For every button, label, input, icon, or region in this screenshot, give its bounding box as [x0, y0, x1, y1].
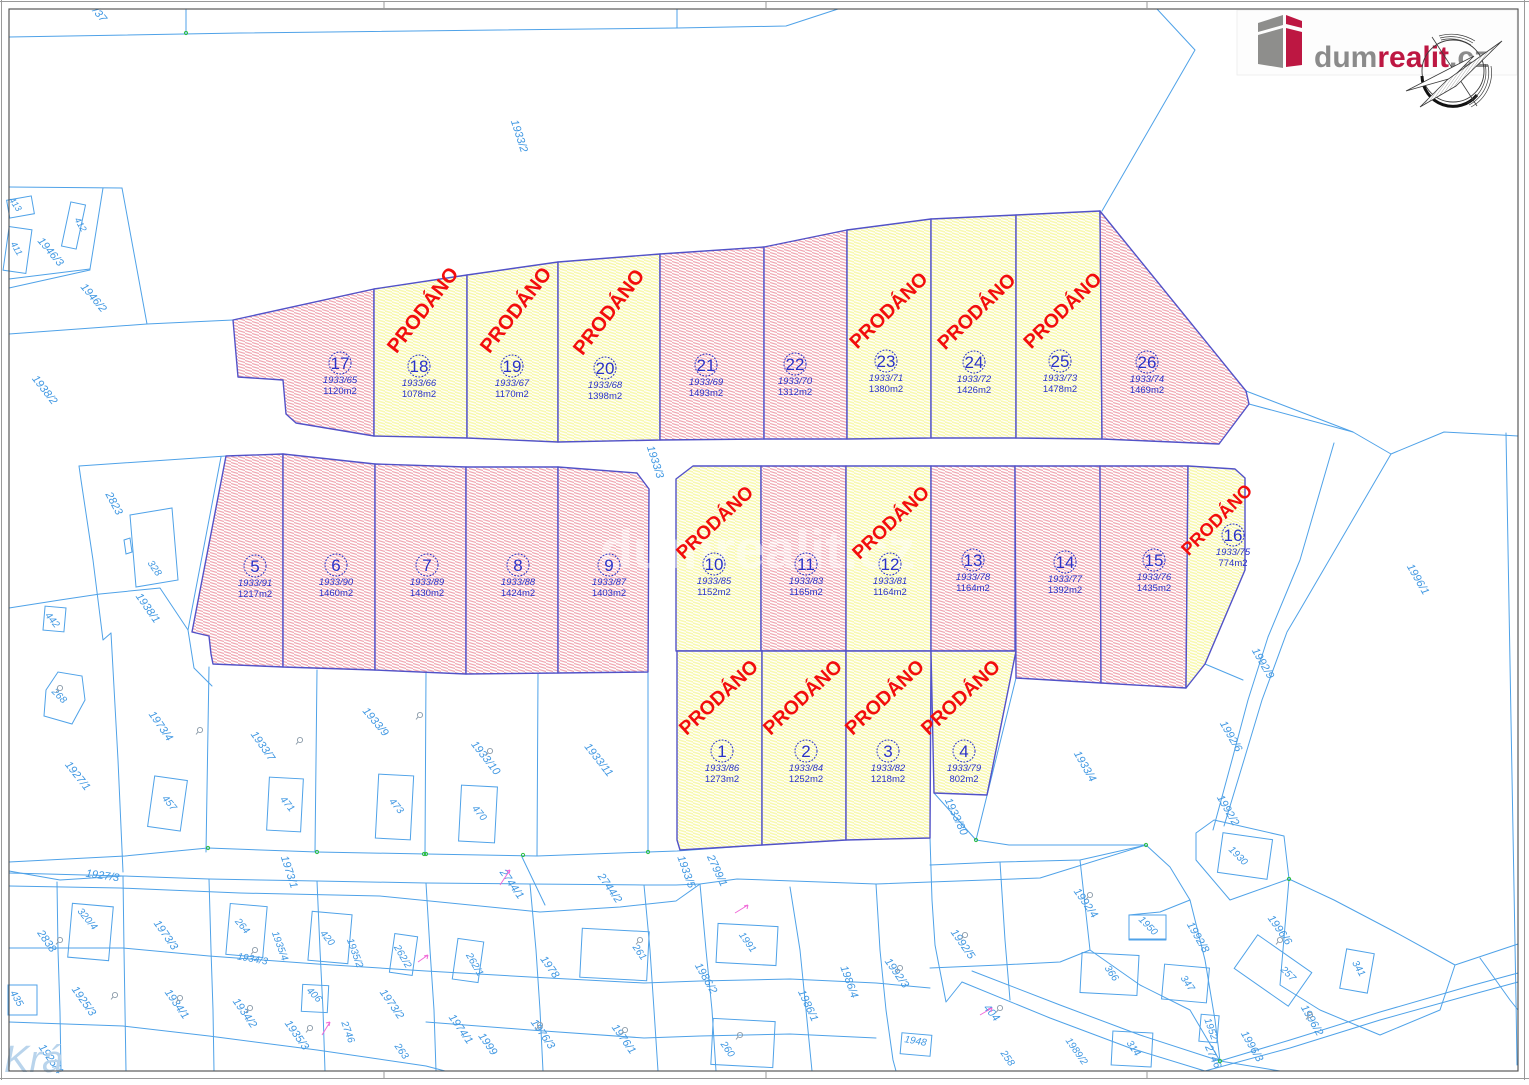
svg-text:1933/72: 1933/72	[957, 374, 992, 385]
svg-text:17: 17	[331, 354, 350, 373]
svg-text:1933/86: 1933/86	[705, 763, 740, 774]
svg-text:1217m2: 1217m2	[238, 589, 272, 600]
svg-text:1120m2: 1120m2	[323, 386, 357, 397]
svg-text:18: 18	[410, 357, 429, 376]
svg-text:1933/68: 1933/68	[588, 380, 623, 391]
svg-text:1493m2: 1493m2	[689, 388, 723, 399]
svg-text:13: 13	[964, 551, 983, 570]
svg-text:1152m2: 1152m2	[697, 587, 731, 598]
svg-text:1435m2: 1435m2	[1137, 583, 1171, 594]
svg-text:1403m2: 1403m2	[592, 588, 626, 599]
svg-text:774m2: 774m2	[1218, 558, 1247, 569]
svg-text:1933/77: 1933/77	[1048, 574, 1083, 585]
svg-text:3: 3	[883, 742, 892, 761]
svg-text:11: 11	[797, 555, 815, 574]
svg-text:1933/65: 1933/65	[323, 375, 358, 386]
svg-text:1078m2: 1078m2	[402, 389, 436, 400]
svg-text:1933/75: 1933/75	[1216, 547, 1251, 558]
svg-text:1273m2: 1273m2	[705, 774, 739, 785]
svg-text:9: 9	[604, 556, 613, 575]
svg-text:26: 26	[1138, 353, 1157, 372]
svg-text:1252m2: 1252m2	[789, 774, 823, 785]
svg-text:1380m2: 1380m2	[869, 384, 903, 395]
svg-text:1312m2: 1312m2	[778, 387, 812, 398]
svg-text:1933/83: 1933/83	[789, 576, 824, 587]
svg-text:1170m2: 1170m2	[495, 389, 529, 400]
svg-text:Krá: Krá	[4, 1039, 63, 1080]
svg-text:1933/84: 1933/84	[789, 763, 823, 774]
svg-text:1933/82: 1933/82	[871, 763, 906, 774]
svg-text:802m2: 802m2	[949, 774, 978, 785]
svg-text:1933/89: 1933/89	[410, 577, 445, 588]
svg-text:1933/81: 1933/81	[873, 576, 907, 587]
svg-text:10: 10	[705, 555, 724, 574]
svg-text:21: 21	[697, 356, 716, 375]
svg-text:2: 2	[801, 742, 810, 761]
svg-text:23: 23	[877, 352, 896, 371]
svg-text:1164m2: 1164m2	[956, 583, 990, 594]
svg-text:1933/87: 1933/87	[592, 577, 627, 588]
svg-text:1933/73: 1933/73	[1043, 373, 1078, 384]
svg-text:1478m2: 1478m2	[1043, 384, 1077, 395]
svg-text:1933/66: 1933/66	[402, 378, 437, 389]
svg-text:1933/88: 1933/88	[501, 577, 536, 588]
svg-text:1933/74: 1933/74	[1130, 374, 1164, 385]
svg-text:1424m2: 1424m2	[501, 588, 535, 599]
svg-text:4: 4	[959, 742, 968, 761]
svg-text:1165m2: 1165m2	[789, 587, 823, 598]
svg-text:1933/71: 1933/71	[869, 373, 903, 384]
svg-text:25: 25	[1051, 352, 1070, 371]
svg-text:1: 1	[717, 742, 726, 761]
svg-text:1933/67: 1933/67	[495, 378, 530, 389]
svg-text:1933/90: 1933/90	[319, 577, 354, 588]
svg-text:1164m2: 1164m2	[873, 587, 907, 598]
svg-text:1398m2: 1398m2	[588, 391, 622, 402]
svg-text:1933/78: 1933/78	[956, 572, 991, 583]
svg-text:1469m2: 1469m2	[1130, 385, 1164, 396]
svg-text:1460m2: 1460m2	[319, 588, 353, 599]
svg-text:24: 24	[965, 353, 984, 372]
svg-text:1392m2: 1392m2	[1048, 585, 1082, 596]
svg-text:7: 7	[422, 556, 431, 575]
svg-text:1933/79: 1933/79	[947, 763, 982, 774]
svg-text:6: 6	[331, 556, 340, 575]
svg-text:1933/85: 1933/85	[697, 576, 732, 587]
svg-text:1218m2: 1218m2	[871, 774, 905, 785]
svg-text:1933/69: 1933/69	[689, 377, 724, 388]
svg-text:19: 19	[503, 357, 522, 376]
svg-text:1430m2: 1430m2	[410, 588, 444, 599]
svg-text:15: 15	[1145, 551, 1164, 570]
svg-text:20: 20	[596, 359, 615, 378]
svg-text:8: 8	[513, 556, 522, 575]
svg-text:16: 16	[1224, 526, 1243, 545]
svg-text:1426m2: 1426m2	[957, 385, 991, 396]
svg-text:1933/91: 1933/91	[238, 578, 272, 589]
svg-text:1933/76: 1933/76	[1137, 572, 1172, 583]
svg-text:14: 14	[1056, 553, 1075, 572]
svg-text:1933/70: 1933/70	[778, 376, 813, 387]
svg-text:12: 12	[881, 555, 900, 574]
svg-text:22: 22	[786, 355, 805, 374]
svg-text:5: 5	[250, 557, 259, 576]
